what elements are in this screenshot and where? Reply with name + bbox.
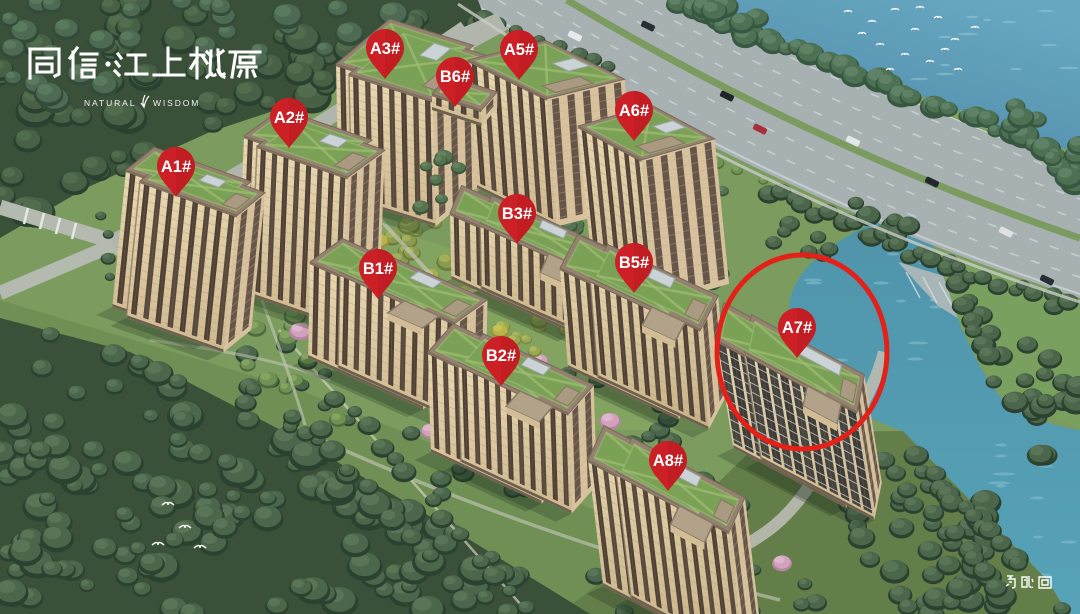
svg-text:NATURAL: NATURAL [84,98,136,108]
svg-text:B5#: B5# [619,254,649,272]
svg-text:A3#: A3# [370,40,400,58]
svg-text:B3#: B3# [502,205,532,223]
svg-text:WISDOM: WISDOM [153,98,200,108]
svg-text:B2#: B2# [486,347,516,365]
svg-text:A8#: A8# [653,452,683,470]
svg-text:A6#: A6# [619,102,649,120]
svg-text:B6#: B6# [440,68,470,86]
svg-text:A7#: A7# [782,319,812,337]
svg-text:A2#: A2# [274,109,304,127]
svg-text:A5#: A5# [504,41,534,59]
svg-text:A1#: A1# [161,158,191,176]
svg-text:B1#: B1# [363,260,393,278]
